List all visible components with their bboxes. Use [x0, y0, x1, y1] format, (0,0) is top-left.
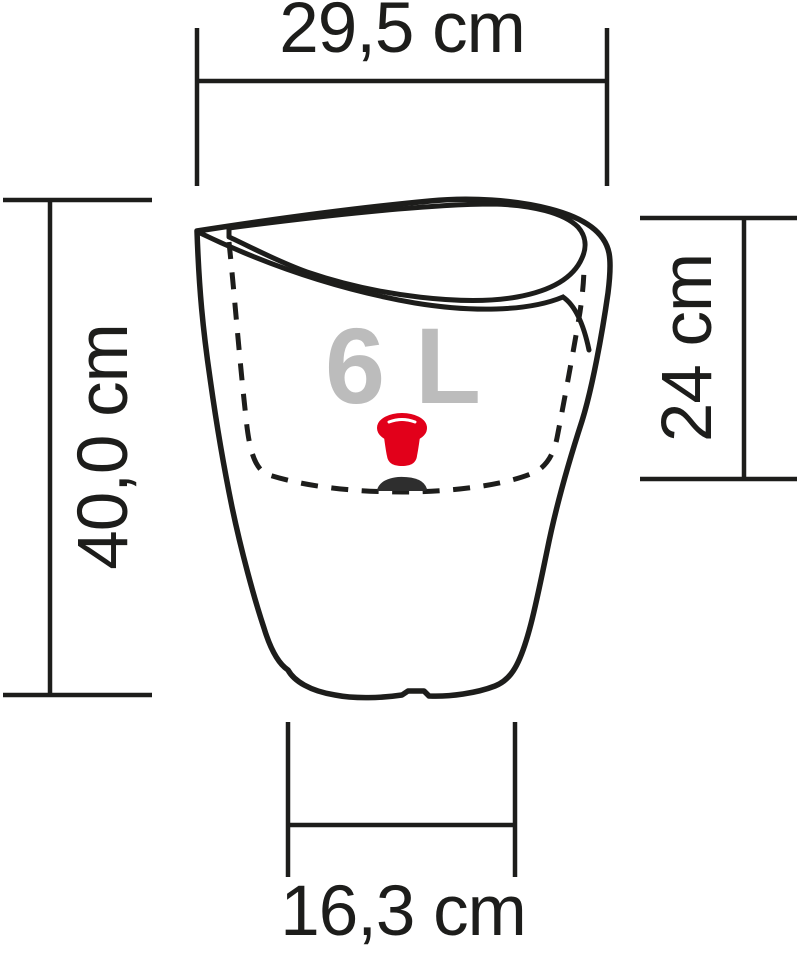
height-label: 40,0 cm — [68, 207, 140, 687]
base-width-label: 16,3 cm — [103, 876, 703, 948]
diagram-canvas: 29,5 cm 40,0 cm 24 cm 16,3 cm 6 L — [0, 0, 800, 957]
capacity-label: 6 L — [103, 310, 703, 422]
pot-drawing — [197, 199, 610, 697]
top-width-label: 29,5 cm — [102, 0, 702, 65]
indicator-plug-body — [383, 421, 421, 466]
base-width-dimension-lines — [288, 722, 515, 877]
